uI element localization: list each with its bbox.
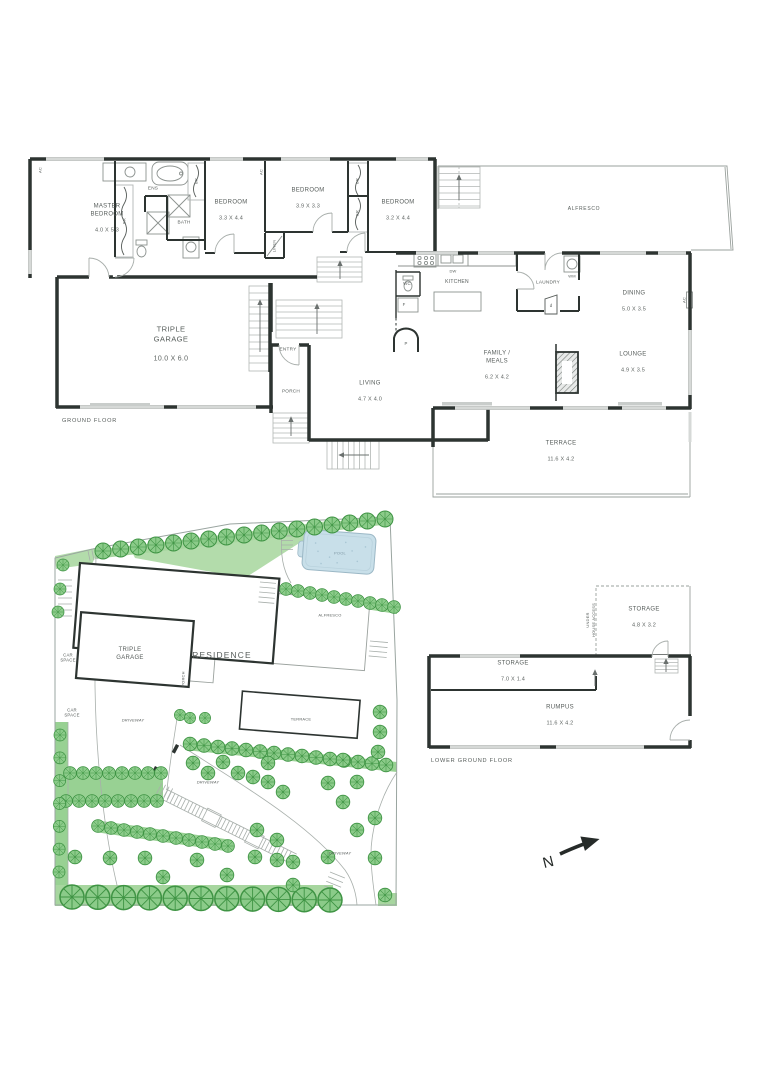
label-text: AC: [681, 297, 686, 303]
tree-icon: [379, 758, 393, 772]
tree-icon: [351, 755, 365, 769]
room-name: ALFRESCO: [568, 206, 601, 213]
label-text: DRIVEWAY: [122, 718, 145, 723]
tree-icon: [170, 832, 183, 845]
north-arrow-icon: [557, 832, 601, 857]
ac-label: AC: [37, 167, 42, 173]
room-name: MASTER BEDROOM: [90, 204, 123, 220]
tree-icon: [336, 795, 350, 809]
site-label-driveway: DRIVEWAY: [329, 846, 352, 857]
floorplan-drawing: [0, 0, 763, 1080]
tree-icon: [295, 749, 309, 763]
tree-icon: [151, 795, 164, 808]
tree-icon: [54, 798, 66, 810]
site-label-terrace: TERRACE: [291, 712, 312, 723]
label-text: DW: [449, 268, 456, 273]
robe-label: BR: [354, 210, 359, 216]
room-label-alfresco: ALFRESCO: [568, 199, 601, 219]
tree-icon: [116, 767, 129, 780]
tree-icon: [309, 751, 323, 765]
label-text: CAR SPACE: [64, 707, 79, 718]
room-dims: 7.0 X 1.4: [497, 676, 528, 683]
section-name: GROUND FLOOR: [62, 418, 117, 425]
tree-icon: [359, 513, 375, 529]
tree-icon: [350, 775, 364, 789]
tree-icon: [216, 755, 230, 769]
tree-icon: [112, 795, 125, 808]
tree-icon: [189, 887, 213, 911]
room-label-living: LIVING 4.7 X 4.0: [358, 373, 382, 412]
tree-icon: [250, 823, 264, 837]
site-label-car-space: CAR SPACE: [60, 646, 75, 663]
room-name: ENTRY: [280, 347, 297, 353]
tree-icon: [388, 601, 401, 614]
tree-icon: [86, 795, 99, 808]
room-name: LOUNGE: [619, 351, 646, 359]
tree-icon: [271, 523, 287, 539]
room-label-master-bedroom: MASTER BEDROOM 4.0 X 5.3: [90, 196, 123, 243]
tree-icon: [112, 886, 136, 910]
door-d-label: d: [550, 303, 553, 309]
tree-icon: [270, 853, 284, 867]
tree-icon: [105, 822, 118, 835]
label-text: P: [404, 341, 407, 346]
room-dims: 3.3 X 4.4: [214, 215, 247, 222]
tree-icon: [130, 539, 146, 555]
tree-icon: [53, 866, 65, 878]
label-text: WM: [568, 273, 576, 278]
tree-icon: [186, 756, 200, 770]
tree-icon: [292, 585, 305, 598]
tree-icon: [103, 767, 116, 780]
room-dims: 3.2 X 4.4: [381, 215, 414, 222]
room-dims: 3.9 X 3.3: [291, 203, 324, 210]
label-text: AC: [258, 169, 263, 175]
tree-icon: [197, 739, 211, 753]
section-name: LOWER GROUND FLOOR: [431, 758, 513, 765]
room-label-bathroom: BATH: [177, 214, 190, 233]
room-name: TERRACE: [546, 440, 577, 448]
room-name: BEDROOM: [381, 199, 414, 207]
room-label-rumpus: RUMPUS 11.6 X 4.2: [546, 697, 574, 736]
tree-icon: [92, 820, 105, 833]
tree-icon: [201, 531, 217, 547]
tree-icon: [174, 709, 185, 720]
room-name: TRIPLE GARAGE: [154, 324, 189, 344]
tree-icon: [53, 843, 65, 855]
tree-icon: [54, 729, 66, 741]
tree-icon: [220, 868, 234, 882]
label-text: BR: [121, 218, 126, 224]
tree-icon: [68, 850, 82, 864]
site-label-triple-garage: TRIPLE GARAGE: [116, 639, 143, 663]
tree-icon: [57, 559, 69, 571]
tree-icon: [342, 515, 358, 531]
robe-label: BR: [121, 218, 126, 224]
site-label-driveway: DRIVEWAY: [197, 775, 220, 786]
room-dims: 4.8 X 3.2: [628, 622, 659, 629]
room-name: BEDROOM: [291, 187, 324, 195]
tree-icon: [336, 753, 350, 767]
pantry-label: P: [404, 341, 407, 347]
tree-icon: [60, 885, 84, 909]
tree-icon: [166, 535, 182, 551]
tree-icon: [183, 834, 196, 847]
room-label-kitchen: KITCHEN: [445, 272, 469, 292]
tree-icon: [209, 838, 222, 851]
room-name: BATH: [177, 220, 190, 226]
room-dims: 4.9 X 3.5: [619, 367, 646, 374]
tree-icon: [376, 599, 389, 612]
tree-icon: [364, 597, 377, 610]
room-label-dining: DINING 5.0 X 3.5: [622, 283, 646, 322]
tree-icon: [95, 543, 111, 559]
tree-icon: [340, 593, 353, 606]
tree-icon: [142, 767, 155, 780]
room-label-bedroom-2: BEDROOM 3.3 X 4.4: [214, 192, 247, 231]
label-text: POOL: [334, 551, 346, 556]
tree-icon: [378, 888, 392, 902]
tree-icon: [222, 840, 235, 853]
washing-machine-label: WM: [568, 273, 576, 278]
tree-icon: [211, 740, 225, 754]
tree-icon: [253, 745, 267, 759]
lgf-steps: [655, 659, 678, 673]
tree-icon: [276, 785, 290, 799]
tree-icon: [307, 519, 323, 535]
tree-icon: [53, 820, 65, 832]
section-label-lower-ground-floor: LOWER GROUND FLOOR: [431, 751, 513, 773]
tree-icon: [261, 756, 275, 770]
tree-icon: [236, 527, 252, 543]
label-text: BR: [193, 178, 198, 184]
gf-stairs: [249, 167, 480, 469]
tree-icon: [318, 888, 342, 912]
tree-icon: [129, 767, 142, 780]
fridge-label: F: [403, 302, 406, 308]
tree-icon: [352, 595, 365, 608]
tree-icon: [125, 795, 138, 808]
wc-label: WC: [403, 281, 411, 287]
room-label-storage-long: STORAGE 7.0 X 1.4: [497, 653, 528, 692]
label-text: TRIPLE GARAGE: [116, 647, 143, 661]
room-label-family-meals: FAMILY / MEALS 6.2 X 4.2: [484, 343, 511, 390]
tree-icon: [368, 851, 382, 865]
tree-icon: [368, 811, 382, 825]
label-text: CAR SPACE: [60, 652, 75, 663]
room-name: STORAGE: [497, 660, 528, 668]
tree-icon: [286, 855, 300, 869]
tree-icon: [286, 878, 300, 892]
label-text: d: [550, 303, 553, 308]
tree-icon: [73, 795, 86, 808]
tree-icon: [371, 745, 385, 759]
ac-label: AC: [258, 169, 263, 175]
label-text: PORCH: [181, 671, 186, 686]
label-text: WC: [403, 281, 411, 286]
tree-icon: [90, 767, 103, 780]
label-text: RESIDENCE: [192, 650, 251, 660]
tree-icon: [231, 766, 245, 780]
tree-icon: [138, 795, 151, 808]
site-label-car-space: CAR SPACE: [64, 701, 79, 718]
room-name: ENS: [148, 186, 158, 192]
tree-icon: [323, 752, 337, 766]
tree-icon: [239, 743, 253, 757]
tree-icon: [218, 529, 234, 545]
label-text: AC: [37, 167, 42, 173]
dishwasher-label: DW: [449, 268, 456, 273]
robe-label: BR: [193, 178, 198, 184]
label-text: DRIVEWAY: [329, 851, 352, 856]
tree-icon: [77, 767, 90, 780]
tree-icon: [118, 824, 131, 837]
tree-icon: [377, 511, 393, 527]
room-name: STORAGE: [628, 606, 659, 614]
tree-icon: [270, 833, 284, 847]
room-label-entry: ENTRY: [280, 341, 297, 360]
room-name: RUMPUS: [546, 704, 574, 712]
site-label-pool: POOL: [334, 546, 346, 557]
tree-icon: [190, 853, 204, 867]
tree-icon: [324, 517, 340, 533]
label-text: BR: [354, 178, 359, 184]
room-label-storage-rear: STORAGE 4.8 X 3.2: [628, 599, 659, 638]
room-label-lounge: LOUNGE 4.9 X 3.5: [619, 344, 646, 383]
tree-icon: [280, 583, 293, 596]
room-label-ensuite: ENS: [148, 180, 158, 199]
tree-icon: [316, 589, 329, 602]
tree-icon: [373, 725, 387, 739]
room-name: KITCHEN: [445, 279, 469, 286]
room-dims: 11.6 X 4.2: [546, 456, 577, 463]
tree-icon: [183, 533, 199, 549]
tree-icon: [350, 823, 364, 837]
tree-icon: [289, 521, 305, 537]
room-name: BEDROOM: [214, 199, 247, 207]
label-text: F: [403, 302, 406, 307]
room-name: LAUNDRY: [536, 280, 560, 286]
tree-icon: [266, 887, 290, 911]
tree-icon: [321, 776, 335, 790]
label-text: TERRACE: [291, 717, 312, 722]
tree-icon: [54, 775, 66, 787]
tree-icon: [54, 752, 66, 764]
tree-icon: [254, 525, 270, 541]
tree-icon: [304, 587, 317, 600]
tree-icon: [163, 886, 187, 910]
tree-icon: [373, 705, 387, 719]
tree-icon: [215, 887, 239, 911]
room-dims: 4.7 X 4.0: [358, 396, 382, 403]
site-label-driveway: DRIVEWAY: [122, 713, 145, 724]
robe-label: BR: [354, 178, 359, 184]
room-dims: 5.0 X 3.5: [622, 306, 646, 313]
tree-icon: [241, 887, 265, 911]
room-name: DINING: [622, 290, 646, 298]
tree-icon: [64, 767, 77, 780]
tree-icon: [86, 885, 110, 909]
tree-icon: [184, 712, 195, 723]
room-label-bedroom-4: BEDROOM 3.2 X 4.4: [381, 192, 414, 231]
tree-icon: [157, 830, 170, 843]
tree-icon: [248, 850, 262, 864]
room-label-terrace: TERRACE 11.6 X 4.2: [546, 433, 577, 472]
label-text: BR: [354, 210, 359, 216]
tree-icon: [281, 748, 295, 762]
tree-icon: [183, 737, 197, 751]
room-dims: 4.0 X 5.3: [90, 227, 123, 234]
room-label-porch: PORCH: [282, 383, 300, 402]
label-text: UNDER HOUSE ACCESS: [585, 603, 595, 637]
tree-icon: [138, 851, 152, 865]
room-dims: 10.0 X 6.0: [154, 354, 189, 363]
tree-icon: [99, 795, 112, 808]
site-label-alfresco: ALFRESCO: [318, 608, 341, 619]
room-dims: 11.6 X 4.2: [546, 720, 574, 727]
site-label-residence: RESIDENCE: [192, 639, 251, 661]
room-name: FAMILY / MEALS: [484, 351, 511, 367]
tree-icon: [246, 770, 260, 784]
tree-icon: [261, 775, 275, 789]
tree-icon: [156, 870, 170, 884]
room-dims: 6.2 X 4.2: [484, 374, 511, 381]
room-label-bedroom-3: BEDROOM 3.9 X 3.3: [291, 180, 324, 219]
tree-icon: [113, 541, 129, 557]
tree-icon: [199, 712, 210, 723]
linen-label: LINEN: [271, 240, 276, 253]
section-label-ground-floor: GROUND FLOOR: [62, 411, 117, 433]
floorplan-page: MASTER BEDROOM 4.0 X 5.3 ENS BATH BEDROO…: [0, 0, 763, 1080]
tree-icon: [225, 742, 239, 756]
tree-icon: [52, 606, 64, 618]
tree-icon: [328, 591, 341, 604]
fireplace: [556, 344, 578, 401]
room-label-triple-garage: TRIPLE GARAGE 10.0 X 6.0: [154, 314, 189, 373]
ac-label: AC: [681, 297, 686, 303]
label-text: DRIVEWAY: [197, 780, 220, 785]
room-label-laundry: LAUNDRY: [536, 274, 560, 293]
site-label-porch: PORCH: [176, 671, 187, 686]
label-text: ALFRESCO: [318, 613, 341, 618]
tree-icon: [131, 826, 144, 839]
room-name: PORCH: [282, 389, 300, 395]
tree-icon: [155, 767, 168, 780]
gf-fixtures: [103, 162, 693, 314]
tree-icon: [137, 886, 161, 910]
tree-icon: [196, 836, 209, 849]
under-house-access-label: UNDER HOUSE ACCESS: [580, 603, 596, 637]
label-text: LINEN: [271, 240, 276, 253]
tree-icon: [148, 537, 164, 553]
tree-icon: [144, 828, 157, 841]
tree-icon: [103, 851, 117, 865]
tree-icon: [54, 583, 66, 595]
room-name: LIVING: [358, 380, 382, 388]
